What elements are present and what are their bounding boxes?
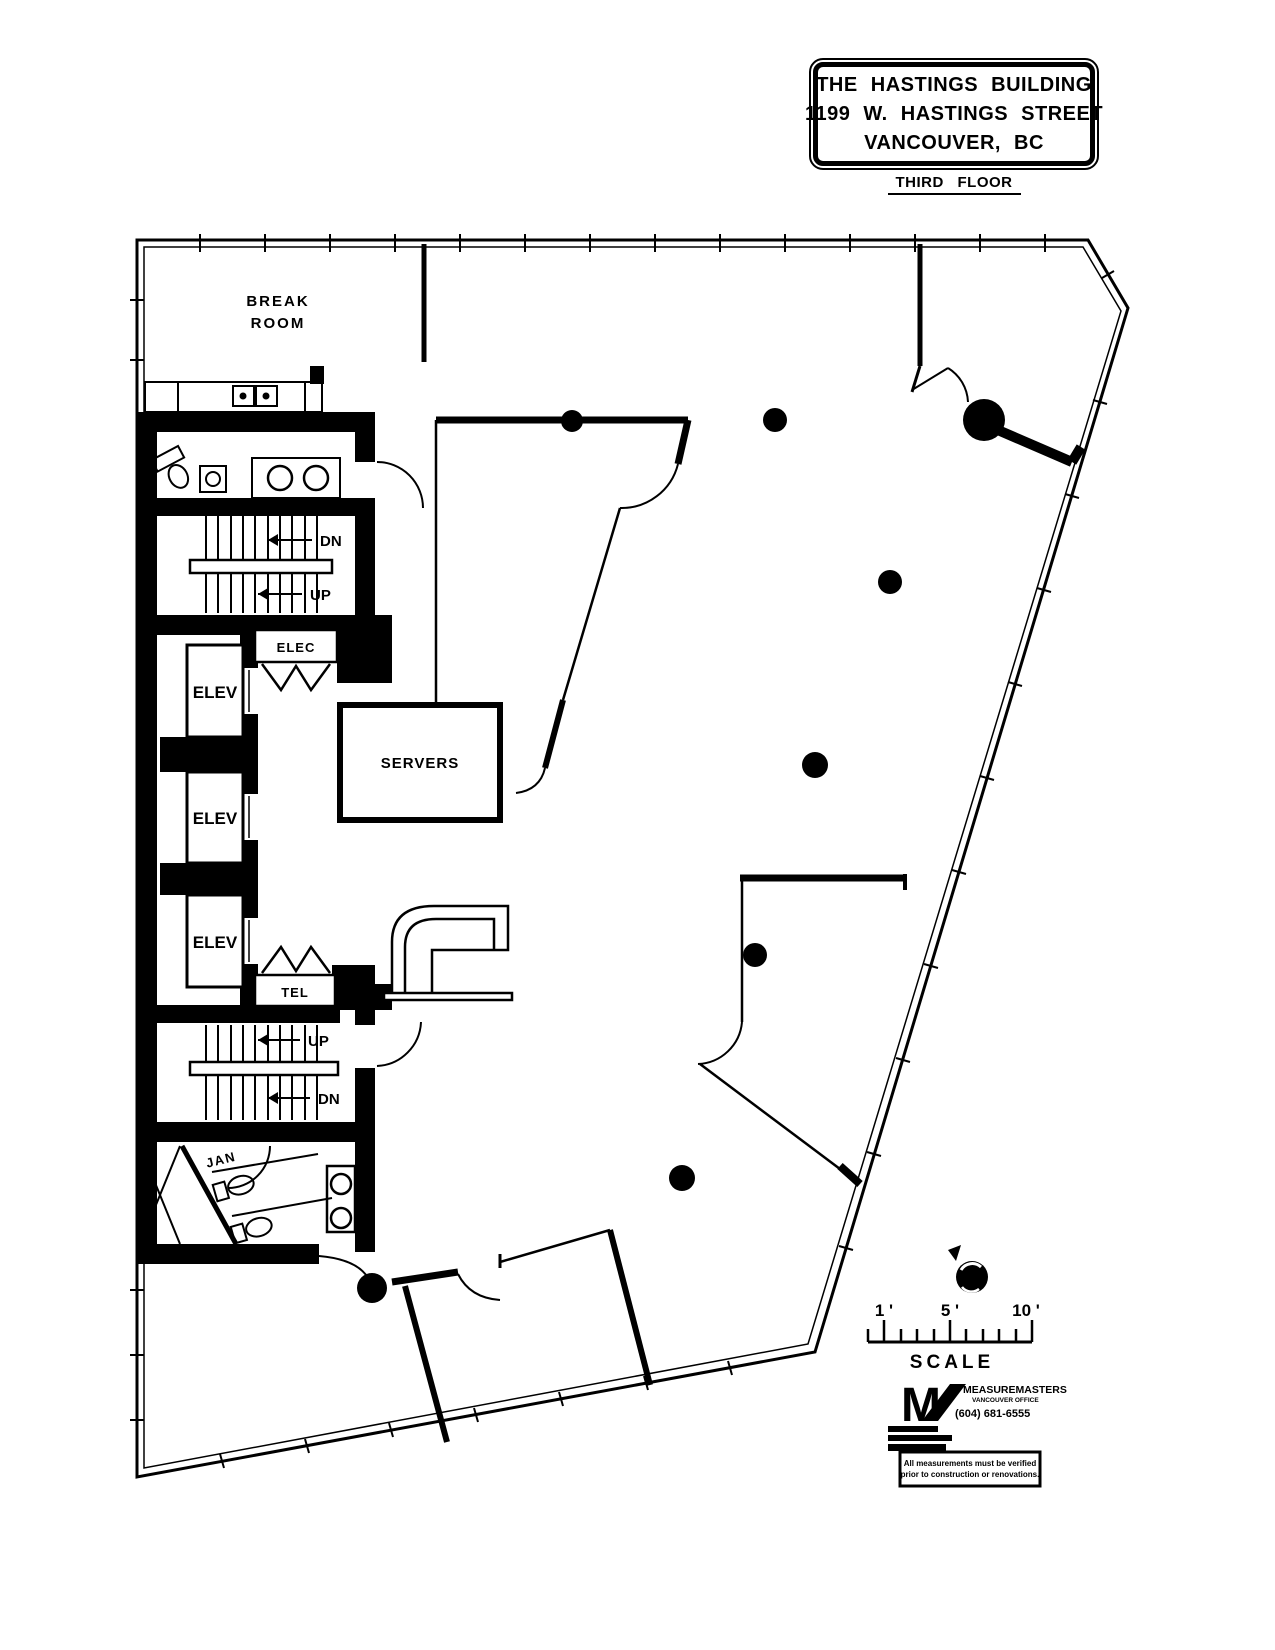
column-marker [561,410,583,432]
core-door-arc-lower [377,1022,421,1066]
disclaimer-line2: prior to construction or renovations. [901,1470,1040,1479]
vendor-block: M MEASUREMASTERS VANCOUVER OFFICE (604) … [888,1379,1067,1486]
vendor-branch: VANCOUVER OFFICE [972,1397,1039,1404]
jan-label: JAN [204,1149,237,1171]
elec-room: ELEC [255,630,337,690]
double-door-icon [262,947,330,973]
dn-arrow [268,534,278,546]
servers-room: SERVERS [340,705,500,820]
stair-up-label: UP [308,1033,329,1050]
tel-room: TEL [255,947,335,1006]
stair-landing [190,560,332,573]
reception-desk [384,906,512,1000]
toilet-icon [230,1215,273,1243]
stair-dn-label: DN [318,1091,340,1108]
disclaimer-box [900,1452,1040,1486]
vendor-brand: MEASUREMASTERS [963,1384,1067,1396]
disclaimer-line1: All measurements must be verified [904,1459,1037,1468]
column-marker [763,408,787,432]
door-arc [698,1022,742,1064]
elevator-bank: ELEV ELEV ELEV [187,645,249,987]
upper-stair: DN UP [190,516,342,613]
elec-label: ELEC [277,640,316,655]
north-arrow [948,1245,988,1293]
service-core-walls [137,366,423,1288]
vanity-sinks-icon [252,458,340,498]
break-room: BREAK ROOM [145,244,424,412]
servers-label: SERVERS [381,755,459,772]
elev-label-3: ELEV [193,933,238,952]
scale-caption: SCALE [910,1352,994,1373]
scale-label-10: 10 ' [1012,1301,1040,1320]
vendor-phone: (604) 681-6555 [955,1408,1030,1420]
floor-plan: BREAK ROOM [0,0,1275,1650]
door-arc [516,768,545,793]
column-marker [878,570,902,594]
column-marker [802,752,828,778]
door-arc [620,464,678,508]
north-needle-icon [948,1245,961,1261]
column-marker [743,943,767,967]
scale-ticks [868,1320,1032,1342]
core-door-arc-upper [377,462,423,508]
scale-label-1: 1 ' [875,1301,893,1320]
kitchen-counter [145,382,322,412]
bottom-center-room [392,1230,650,1442]
stair-dn-label: DN [320,533,342,550]
column-marker-large [963,399,1005,441]
elev-label-1: ELEV [193,683,238,702]
toilet-icon [152,446,197,495]
tel-label: TEL [281,985,309,1000]
door-arc [948,368,968,402]
lower-stair: UP DN [190,1025,340,1120]
dn-arrow [268,1092,278,1104]
column-marker [357,1273,387,1303]
column-marker [669,1165,695,1191]
elev-label-2: ELEV [193,809,238,828]
break-room-label-line2: ROOM [251,315,306,332]
structural-columns [357,399,1005,1303]
janitor-washroom: JAN [140,1146,355,1244]
drawing-sheet: THE HASTINGS BUILDING 1199 W. HASTINGS S… [0,0,1275,1650]
scale-bar: 1 ' 5 ' 10 ' SCALE [868,1301,1040,1373]
scale-label-5: 5 ' [941,1301,959,1320]
double-door-icon [262,664,330,690]
break-room-label-line1: BREAK [246,293,309,310]
vendor-fine-print [888,1426,952,1451]
upper-washroom [152,446,340,498]
small-sink-icon [200,466,226,492]
mid-right-room [698,874,905,1184]
door-arc [458,1274,500,1300]
stair-up-label: UP [310,587,331,604]
up-arrow [258,588,268,600]
up-arrow [258,1034,268,1046]
stair-landing [190,1062,338,1075]
